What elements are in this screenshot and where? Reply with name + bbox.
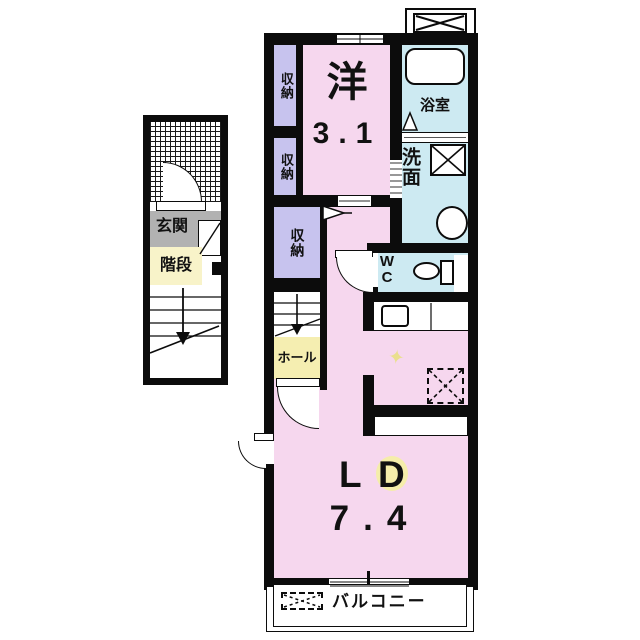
western-room-bottom-wall [264, 195, 403, 207]
balcony-label: バルコニー [332, 593, 427, 611]
bathtub-icon [405, 48, 465, 85]
wet-zone-left-wall [390, 40, 402, 247]
floor-plan: 玄関 階段 収納 収納 洋 3.1 浴室 洗面 [0, 0, 640, 640]
toilet-tank-icon [440, 260, 454, 285]
hall-door-leaf-icon [276, 378, 320, 387]
hall-label: ホール [277, 351, 316, 365]
western-room-size: 3.1 [303, 116, 391, 152]
bath-door-threshold [402, 132, 468, 143]
entrance-door-leaf-icon [156, 201, 206, 211]
ld-size-label: 7.4 [315, 499, 435, 539]
closet-top: 収納 [274, 45, 298, 126]
wc-shelf [454, 255, 468, 292]
west-door-leaf-icon [254, 433, 274, 441]
western-room-doorway [338, 195, 371, 207]
ld-label-d: D [378, 456, 405, 495]
kitchen-top-wall [363, 292, 468, 302]
stairs-label: 階段 [160, 258, 192, 275]
closet-lower: 収納 [274, 207, 320, 278]
kitchen-divider-wall [374, 405, 468, 416]
ld-label-l: L [339, 456, 362, 495]
corridor-wall [320, 204, 327, 390]
ld-size-text: 7.4 [330, 501, 421, 538]
hall-area: ホール [274, 337, 320, 379]
entrance-label: 玄関 [156, 219, 188, 236]
closet-top-label: 収納 [279, 72, 293, 100]
kitchen-left-upper-wall [363, 292, 374, 331]
washing-machine-pan-icon [430, 144, 466, 176]
main-stairs-area [274, 292, 320, 337]
window-top-icon [336, 34, 384, 44]
washroom-doorway [390, 160, 402, 198]
bath-label: 浴室 [402, 97, 468, 115]
western-room-size-text: 3.1 [313, 118, 382, 150]
western-room-label: 洋 [303, 60, 391, 106]
balcony-equipment-icon [281, 592, 323, 610]
annex-wall-stub [212, 262, 221, 275]
kitchen-sink-icon [381, 305, 409, 327]
stairs-label-area: 階段 [150, 247, 202, 285]
annex-stairs-area [150, 285, 221, 378]
sparkle-icon: ✦ [386, 344, 406, 371]
wc-label-c: C [378, 270, 396, 286]
wc-label-w: W [378, 254, 396, 270]
closet-middle-label: 収納 [279, 153, 293, 181]
closet-lower-label: 収納 [290, 228, 305, 258]
toilet-bowl-icon [413, 262, 440, 280]
basin-icon [436, 206, 468, 240]
west-door-arc-icon [238, 441, 266, 469]
vent-x-box-icon [413, 13, 467, 33]
fridge-space-icon [427, 368, 464, 404]
wc-top-wall [378, 243, 468, 253]
closet-lower-bottom-wall [274, 278, 327, 292]
kitchen-lower-counter [374, 416, 468, 436]
wc-label: W C [378, 254, 396, 286]
closet-middle: 収納 [274, 138, 298, 195]
bath-label-text: 浴室 [420, 98, 450, 114]
closet-right-wall [296, 45, 303, 195]
kitchen-left-lower-wall [363, 375, 374, 436]
western-room-kanji: 洋 [327, 61, 368, 104]
